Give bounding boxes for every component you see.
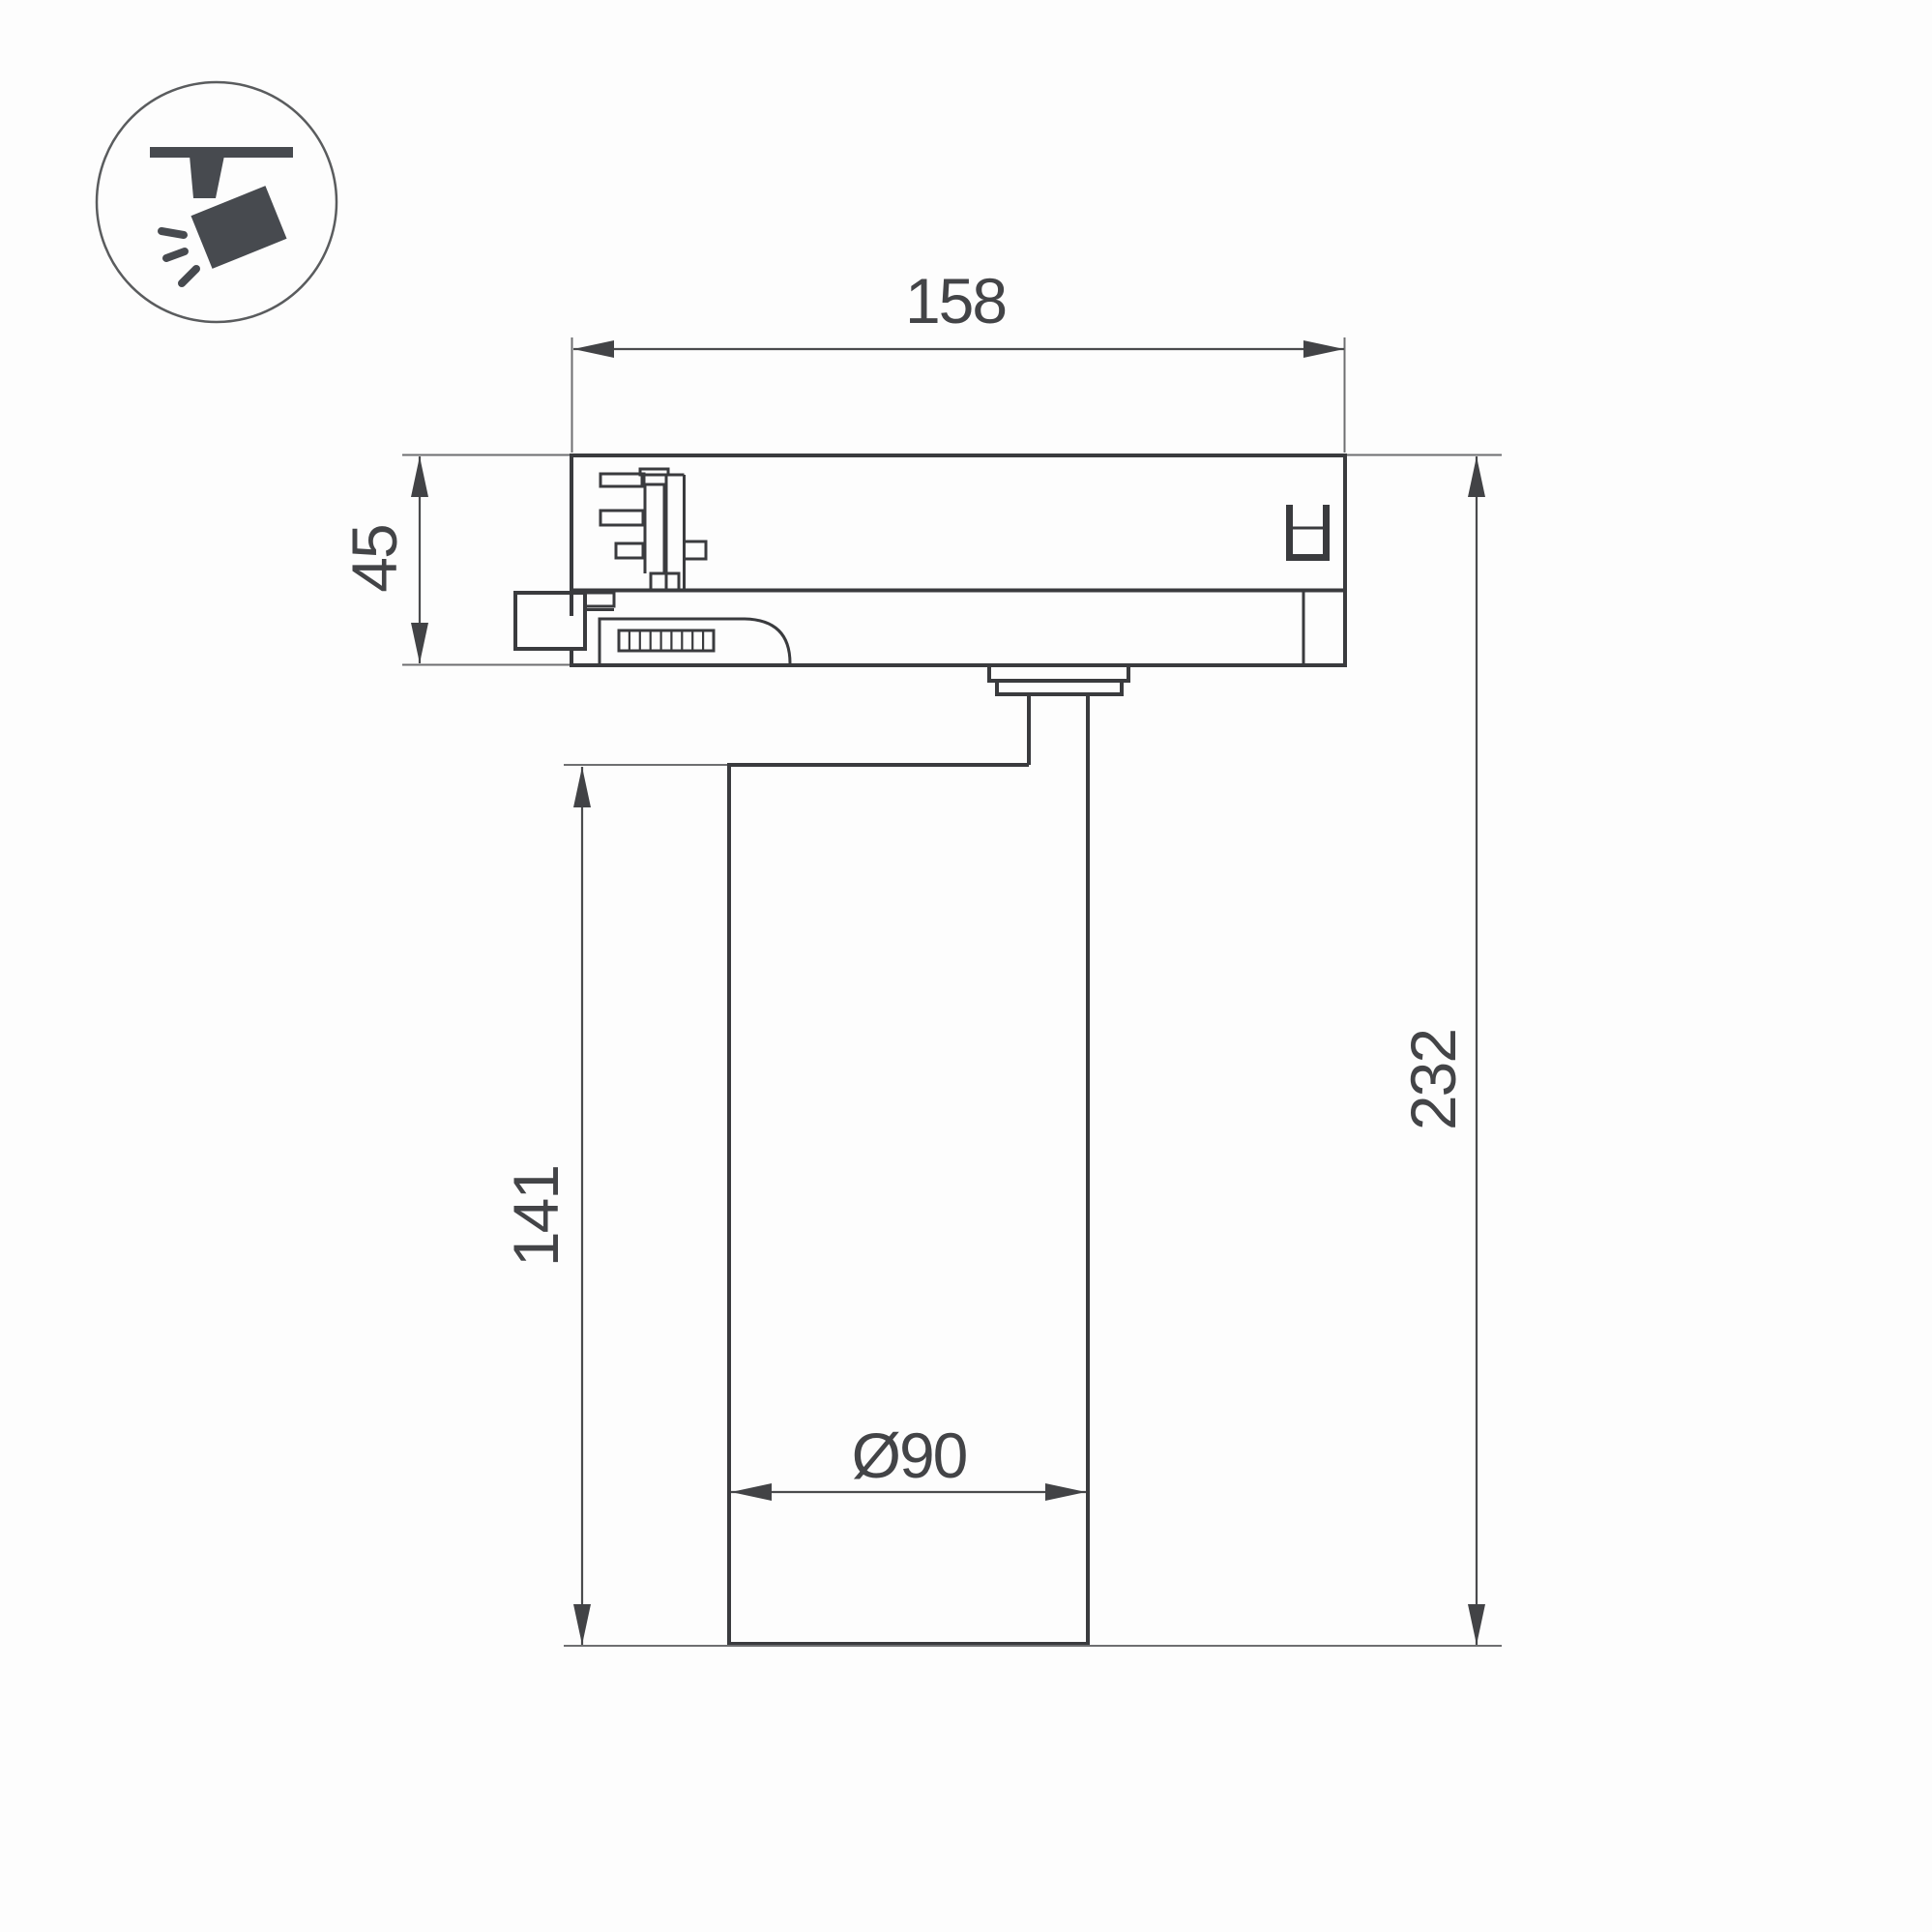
adapter-lower-housing	[600, 619, 790, 663]
dimension-body-diameter: Ø90	[731, 1420, 1086, 1501]
arrowhead-right	[1303, 340, 1344, 358]
lamp-cylinder-body	[729, 765, 1088, 1644]
arrowhead-top	[573, 767, 591, 807]
contact-cap	[642, 475, 666, 484]
dimension-label: Ø90	[852, 1420, 967, 1491]
arrowhead-bottom	[1468, 1604, 1485, 1645]
adapter-contact-assembly	[600, 469, 706, 590]
technical-drawing-page: 158 45 141 232	[0, 0, 1932, 1932]
dimension-label: 45	[338, 525, 410, 592]
icon-circle-ring	[97, 82, 337, 322]
slider-body	[619, 630, 714, 651]
lower-housing-outline	[600, 619, 790, 663]
arrowhead-top	[411, 456, 428, 497]
mount-stem	[1029, 694, 1088, 765]
dimension-label: 232	[1397, 1030, 1469, 1130]
latch-spring-box	[585, 593, 614, 606]
dimension-label: 158	[905, 265, 1006, 337]
contact-channel	[645, 484, 664, 573]
lamp-mount-and-body	[729, 665, 1128, 1644]
slider-ribs	[629, 630, 703, 651]
dimension-drawing-svg: 158 45 141 232	[0, 0, 1932, 1932]
dimension-body-height: 141	[500, 765, 727, 1645]
arrowhead-left	[731, 1483, 772, 1501]
dimension-adapter-height: 45	[338, 455, 570, 665]
latch-box	[515, 593, 585, 649]
contact-side-notch	[685, 542, 707, 559]
contact-prong-bottom	[616, 543, 643, 558]
track-spotlight-icon	[97, 82, 337, 322]
dimension-total-height: 232	[564, 455, 1502, 1647]
arrowhead-right	[1045, 1483, 1086, 1501]
mount-step-1	[989, 665, 1128, 681]
contact-prong-top	[600, 474, 644, 486]
arrowhead-bottom	[411, 623, 428, 663]
dimension-label: 141	[500, 1166, 571, 1267]
arrowhead-bottom	[573, 1604, 591, 1645]
icon-light-ray	[161, 231, 184, 235]
mount-step-2	[997, 681, 1122, 694]
dimension-adapter-width: 158	[572, 265, 1345, 453]
contact-prong-middle	[600, 511, 643, 525]
adapter-u-clip	[1286, 505, 1330, 561]
arrowhead-top	[1468, 456, 1485, 497]
arrowhead-left	[573, 340, 614, 358]
